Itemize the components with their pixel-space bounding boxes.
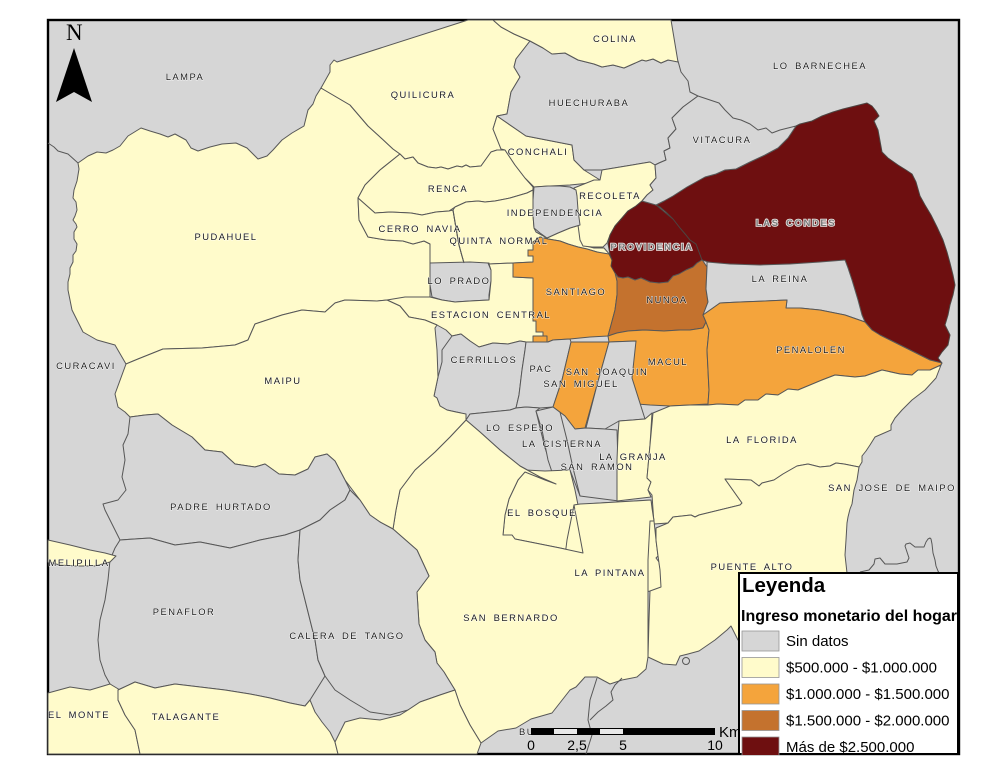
svg-text:EL MONTE: EL MONTE — [48, 709, 110, 720]
svg-text:RENCA: RENCA — [428, 183, 468, 194]
svg-text:$1.000.000 - $1.500.000: $1.000.000 - $1.500.000 — [786, 686, 949, 703]
svg-text:LO ESPEJO: LO ESPEJO — [486, 422, 554, 433]
svg-text:TALAGANTE: TALAGANTE — [152, 711, 221, 722]
svg-text:LO BARNECHEA: LO BARNECHEA — [773, 60, 867, 71]
svg-text:PUDAHUEL: PUDAHUEL — [194, 231, 257, 242]
svg-text:SANTIAGO: SANTIAGO — [546, 286, 606, 297]
svg-text:LO PRADO: LO PRADO — [428, 275, 491, 286]
svg-text:SAN RAMON: SAN RAMON — [561, 461, 634, 472]
svg-text:Leyenda: Leyenda — [742, 574, 826, 597]
svg-text:CERRO NAVIA: CERRO NAVIA — [379, 223, 462, 234]
svg-text:PROVIDENCIA: PROVIDENCIA — [610, 242, 693, 253]
svg-text:SAN MIGUEL: SAN MIGUEL — [543, 378, 618, 389]
svg-text:ESTACION CENTRAL: ESTACION CENTRAL — [431, 309, 551, 320]
svg-text:RECOLETA: RECOLETA — [579, 190, 641, 201]
svg-text:CALERA DE TANGO: CALERA DE TANGO — [289, 630, 404, 641]
svg-text:MACUL: MACUL — [648, 356, 688, 367]
svg-text:SAN JOAQUIN: SAN JOAQUIN — [566, 366, 649, 377]
svg-text:SAN BERNARDO: SAN BERNARDO — [463, 612, 559, 623]
svg-text:QUILICURA: QUILICURA — [391, 89, 456, 100]
svg-text:QUINTA NORMAL: QUINTA NORMAL — [450, 235, 549, 246]
svg-text:INDEPENDENCIA: INDEPENDENCIA — [507, 207, 604, 218]
svg-text:0: 0 — [527, 737, 535, 753]
svg-text:$500.000 - $1.000.000: $500.000 - $1.000.000 — [786, 660, 937, 677]
svg-text:VITACURA: VITACURA — [693, 134, 752, 145]
svg-text:PAC: PAC — [529, 363, 552, 374]
svg-text:LA PINTANA: LA PINTANA — [575, 567, 646, 578]
svg-text:NUNOA: NUNOA — [646, 294, 687, 305]
svg-text:SAN JOSE DE MAIPO: SAN JOSE DE MAIPO — [828, 482, 956, 493]
svg-text:PENAFLOR: PENAFLOR — [153, 606, 216, 617]
svg-text:MAIPU: MAIPU — [264, 375, 301, 386]
svg-text:MELIPILLA: MELIPILLA — [49, 557, 110, 568]
svg-text:EL BOSQUE: EL BOSQUE — [507, 507, 577, 518]
svg-text:COLINA: COLINA — [593, 33, 637, 44]
svg-text:Sin datos: Sin datos — [786, 633, 849, 650]
svg-text:LAS CONDES: LAS CONDES — [756, 218, 836, 229]
svg-text:LAMPA: LAMPA — [166, 71, 205, 82]
svg-text:CERRILLOS: CERRILLOS — [451, 354, 518, 365]
svg-text:PUENTE ALTO: PUENTE ALTO — [711, 561, 794, 572]
svg-text:5: 5 — [619, 737, 627, 753]
svg-text:N: N — [66, 20, 83, 45]
svg-text:2,5: 2,5 — [567, 737, 587, 753]
svg-text:$1.500.000 - $2.000.000: $1.500.000 - $2.000.000 — [786, 713, 949, 730]
svg-text:Más de $2.500.000: Más de $2.500.000 — [786, 739, 914, 756]
svg-text:LA REINA: LA REINA — [752, 273, 809, 284]
svg-text:CURACAVI: CURACAVI — [56, 360, 116, 371]
svg-text:LA FLORIDA: LA FLORIDA — [726, 434, 798, 445]
svg-text:PENALOLEN: PENALOLEN — [776, 344, 846, 355]
svg-text:PADRE HURTADO: PADRE HURTADO — [170, 501, 272, 512]
svg-text:LA CISTERNA: LA CISTERNA — [522, 438, 602, 449]
svg-text:Ingreso monetario del hogar: Ingreso monetario del hogar — [741, 608, 957, 625]
svg-text:HUECHURABA: HUECHURABA — [549, 97, 630, 108]
svg-text:CONCHALI: CONCHALI — [508, 146, 568, 157]
